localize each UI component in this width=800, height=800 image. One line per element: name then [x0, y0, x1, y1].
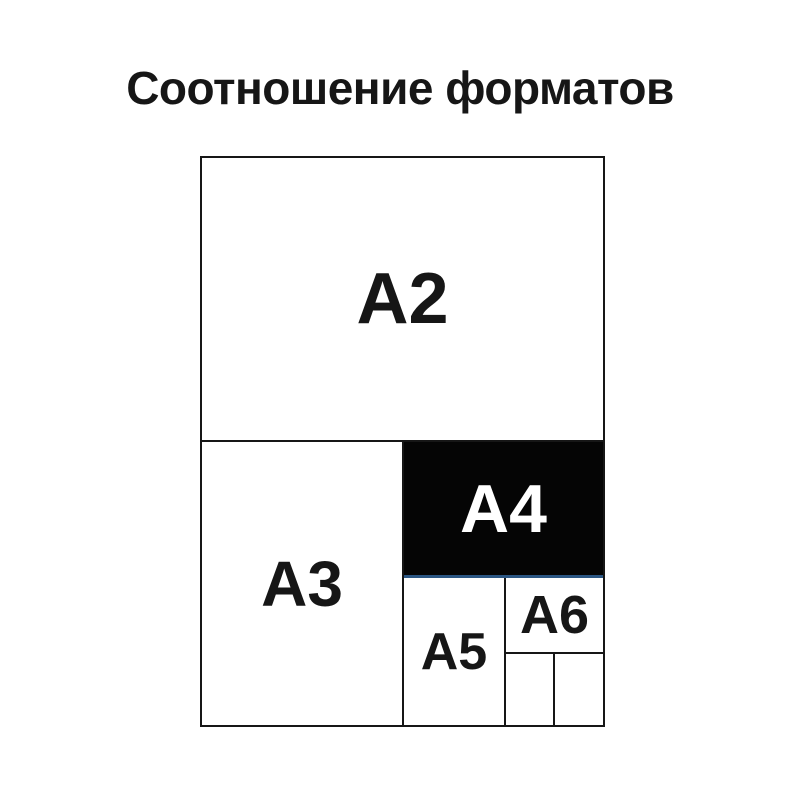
format-cell-a3: A3: [202, 442, 404, 725]
format-label-a3: A3: [261, 547, 343, 621]
format-cell-a6: A6: [506, 578, 603, 654]
format-cell-a2: A2: [202, 158, 603, 442]
format-label-a4: A4: [460, 470, 547, 548]
format-label-a6: A6: [520, 584, 589, 646]
format-cell-small-left: [506, 654, 555, 725]
product-image-canvas: Соотношение форматов A2 A3 A4 A5 A6: [0, 0, 800, 800]
format-label-a5: A5: [421, 622, 487, 682]
format-cell-a5: A5: [404, 578, 506, 725]
diagram-title: Соотношение форматов: [0, 56, 800, 120]
format-label-a2: A2: [356, 258, 448, 340]
format-cell-small-right: [555, 654, 603, 725]
format-cell-a4-highlighted: A4: [404, 442, 603, 578]
paper-format-diagram: A2 A3 A4 A5 A6: [200, 156, 605, 727]
